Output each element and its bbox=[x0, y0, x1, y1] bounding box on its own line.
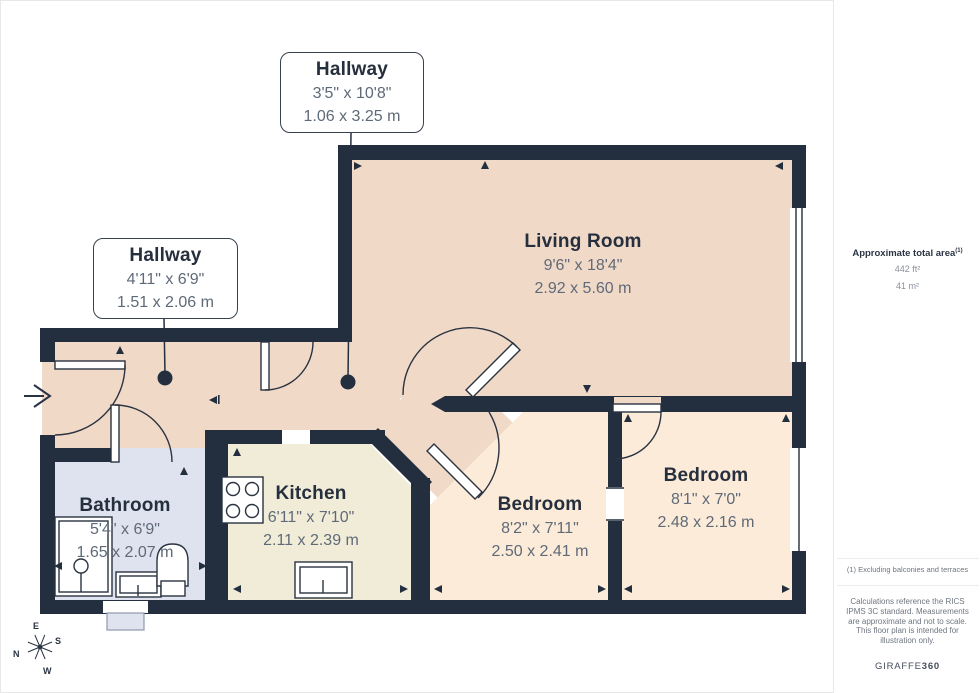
room-label-bathroom: Bathroom 5'4" x 6'9" 1.65 x 2.07 m bbox=[35, 493, 215, 564]
room-dimensions-metric: 1.65 x 2.07 m bbox=[35, 541, 215, 564]
area-metric: 41 m² bbox=[834, 278, 980, 295]
room-name: Bedroom bbox=[606, 463, 806, 488]
room-dimensions-metric: 2.92 x 5.60 m bbox=[483, 277, 683, 300]
room-label-hallway-left: Hallway 4'11" x 6'9" 1.51 x 2.06 m bbox=[93, 238, 238, 319]
bathroom-window bbox=[103, 601, 148, 630]
room-dimensions-imperial: 3'5" x 10'8" bbox=[283, 82, 421, 105]
living-room-window bbox=[790, 208, 808, 362]
info-panel: Approximate total area(1) 442 ft² 41 m² … bbox=[833, 0, 980, 693]
floorplan-page: E S N W Hallway 3'5" x 10'8" 1.06 x 3.25… bbox=[0, 0, 980, 693]
compass-south-label: S bbox=[55, 636, 61, 646]
room-name: Bathroom bbox=[35, 493, 215, 518]
room-dimensions-imperial: 9'6" x 18'4" bbox=[483, 254, 683, 277]
room-dimensions-metric: 2.11 x 2.39 m bbox=[211, 529, 411, 552]
room-dimensions-imperial: 6'11" x 7'10" bbox=[211, 506, 411, 529]
area-note-marker: (1) bbox=[955, 248, 962, 254]
room-label-kitchen: Kitchen 6'11" x 7'10" 2.11 x 2.39 m bbox=[211, 481, 411, 552]
divider bbox=[837, 558, 979, 559]
room-name: Hallway bbox=[283, 57, 421, 82]
disclaimer-text: Calculations reference the RICS IPMS 3C … bbox=[845, 597, 970, 646]
room-dimensions-metric: 1.06 x 3.25 m bbox=[283, 105, 421, 128]
room-dimensions-imperial: 4'11" x 6'9" bbox=[96, 268, 235, 291]
area-imperial: 442 ft² bbox=[834, 261, 980, 278]
room-label-bedroom-right: Bedroom 8'1" x 7'0" 2.48 x 2.16 m bbox=[606, 463, 806, 534]
room-dimensions-metric: 2.48 x 2.16 m bbox=[606, 511, 806, 534]
area-footnote: (1) Excluding balconies and terraces bbox=[834, 565, 980, 574]
room-label-hallway-top: Hallway 3'5" x 10'8" 1.06 x 3.25 m bbox=[280, 52, 424, 133]
room-name: Kitchen bbox=[211, 481, 411, 506]
brand-suffix: 360 bbox=[922, 661, 940, 672]
total-area-block: Approximate total area(1) 442 ft² 41 m² bbox=[834, 244, 980, 294]
kitchen-sink bbox=[295, 562, 352, 598]
room-dimensions-metric: 2.50 x 2.41 m bbox=[440, 540, 640, 563]
room-name: Hallway bbox=[96, 243, 235, 268]
compass-north-label: N bbox=[13, 649, 20, 659]
entry-threshold bbox=[42, 362, 56, 435]
compass-east-label: E bbox=[33, 621, 39, 631]
compass: E S N W bbox=[13, 621, 61, 676]
room-name: Living Room bbox=[483, 229, 683, 254]
brand-logo: GIRAFFE360 bbox=[834, 656, 980, 674]
area-title: Approximate total area(1) bbox=[834, 244, 980, 261]
brand-name: GIRAFFE bbox=[875, 661, 922, 672]
washbasin bbox=[116, 572, 161, 597]
compass-west-label: W bbox=[43, 666, 52, 676]
room-dimensions-metric: 1.51 x 2.06 m bbox=[96, 291, 235, 314]
divider bbox=[837, 585, 979, 586]
room-dimensions-imperial: 8'1" x 7'0" bbox=[606, 488, 806, 511]
room-label-living-room: Living Room 9'6" x 18'4" 2.92 x 5.60 m bbox=[483, 229, 683, 300]
area-title-text: Approximate total area bbox=[852, 248, 955, 259]
room-dimensions-imperial: 5'4" x 6'9" bbox=[35, 518, 215, 541]
